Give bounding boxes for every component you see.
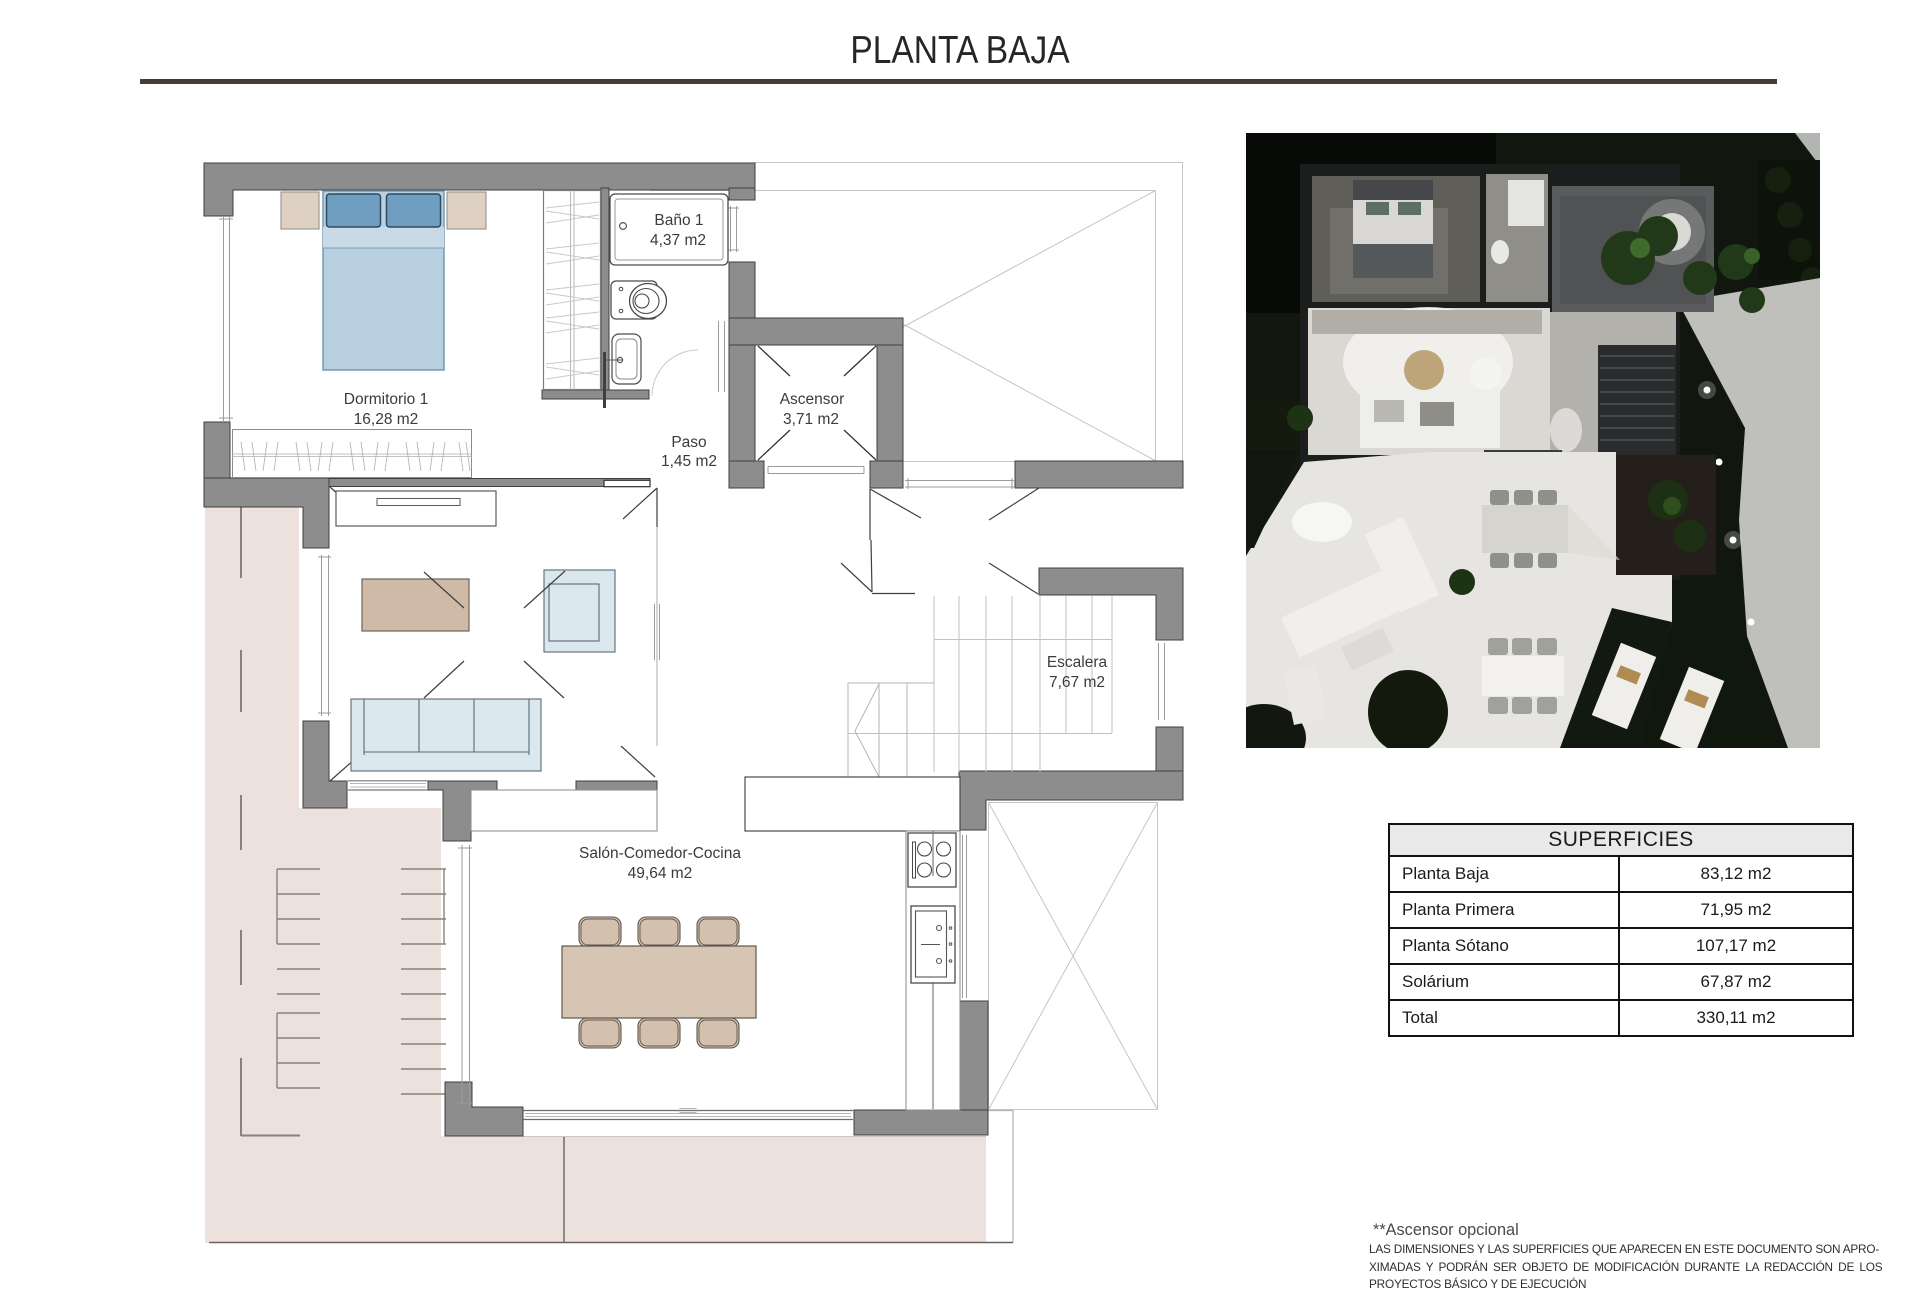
svg-text:Baño 1: Baño 1 <box>654 212 703 229</box>
svg-text:49,64 m2: 49,64 m2 <box>628 865 693 882</box>
svg-text:Dormitorio 1: Dormitorio 1 <box>344 391 428 408</box>
svg-text:Paso: Paso <box>671 434 706 451</box>
svg-text:16,28 m2: 16,28 m2 <box>354 411 419 428</box>
svg-text:1,45 m2: 1,45 m2 <box>661 453 717 470</box>
svg-text:7,67 m2: 7,67 m2 <box>1049 674 1105 691</box>
svg-text:4,37 m2: 4,37 m2 <box>650 232 706 249</box>
svg-text:Escalera: Escalera <box>1047 654 1108 671</box>
svg-text:3,71 m2: 3,71 m2 <box>783 411 839 428</box>
svg-text:Salón-Comedor-Cocina: Salón-Comedor-Cocina <box>579 845 741 862</box>
svg-text:Ascensor: Ascensor <box>780 391 845 408</box>
